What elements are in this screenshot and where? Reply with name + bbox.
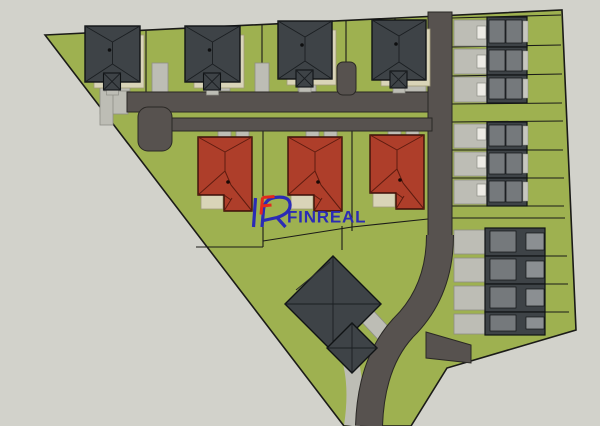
chimney	[316, 180, 320, 184]
parked-car	[477, 83, 486, 96]
parked-car	[477, 184, 486, 196]
driveway	[255, 63, 269, 92]
chimney	[300, 43, 304, 47]
red-house	[198, 137, 252, 211]
roof-panel	[490, 231, 516, 252]
cluster-unit	[485, 284, 545, 312]
red-house	[288, 137, 342, 211]
roof-panel	[506, 78, 522, 99]
roof-panel	[490, 287, 516, 308]
roof-panel	[489, 78, 505, 99]
finreal-logo-text: FINREAL	[287, 208, 366, 227]
roof-panel	[506, 153, 522, 174]
roof-panel	[489, 181, 505, 202]
chimney	[226, 180, 230, 184]
townhouse-unit	[487, 122, 528, 150]
townhouse-unit	[487, 150, 528, 178]
roof-panel	[506, 181, 522, 202]
garage-panel	[526, 261, 544, 278]
eave	[523, 21, 528, 42]
dark-house	[85, 26, 144, 95]
roof-panel	[506, 125, 522, 146]
parked-car	[477, 128, 486, 140]
parked-car	[477, 55, 486, 68]
roof-panel	[506, 20, 522, 43]
roof-panel	[489, 50, 505, 71]
cluster-unit	[485, 256, 545, 284]
dark-house	[372, 20, 430, 93]
parked-car	[477, 26, 486, 39]
road	[127, 92, 432, 112]
eave	[523, 182, 528, 201]
roof-panel	[489, 20, 505, 43]
parked-car	[477, 156, 486, 168]
road-stub	[337, 62, 356, 95]
garage-panel	[526, 317, 544, 329]
cluster-unit	[485, 312, 545, 335]
townhouse-unit	[487, 178, 528, 206]
garage-panel	[526, 233, 544, 250]
eave	[523, 154, 528, 173]
driveway	[454, 286, 485, 310]
chimney	[108, 48, 112, 52]
chimney	[208, 48, 212, 52]
garage-panel	[526, 289, 544, 306]
townhouse-unit	[487, 17, 528, 47]
townhouse-unit	[487, 47, 528, 75]
road-stub	[138, 107, 172, 151]
roof-panel	[490, 259, 516, 280]
roof-panel	[489, 153, 505, 174]
dark-house	[185, 26, 244, 95]
driveway	[454, 314, 485, 334]
eave	[523, 126, 528, 145]
site-plan-canvas: FINREAL	[0, 0, 600, 426]
roof-panel	[490, 315, 516, 331]
eave	[523, 51, 528, 70]
driveway	[152, 63, 168, 92]
red-house	[370, 135, 424, 209]
driveway	[454, 258, 485, 282]
eave	[523, 79, 528, 98]
chimney	[398, 178, 402, 182]
dark-house	[278, 21, 336, 92]
roof-panel	[489, 125, 505, 146]
driveway	[454, 230, 485, 254]
roof-panel	[506, 50, 522, 71]
site-plan-drawing: FINREAL	[0, 0, 600, 426]
cluster-unit	[485, 228, 545, 256]
townhouse-unit	[487, 75, 528, 103]
road	[152, 118, 432, 131]
chimney	[394, 42, 398, 46]
